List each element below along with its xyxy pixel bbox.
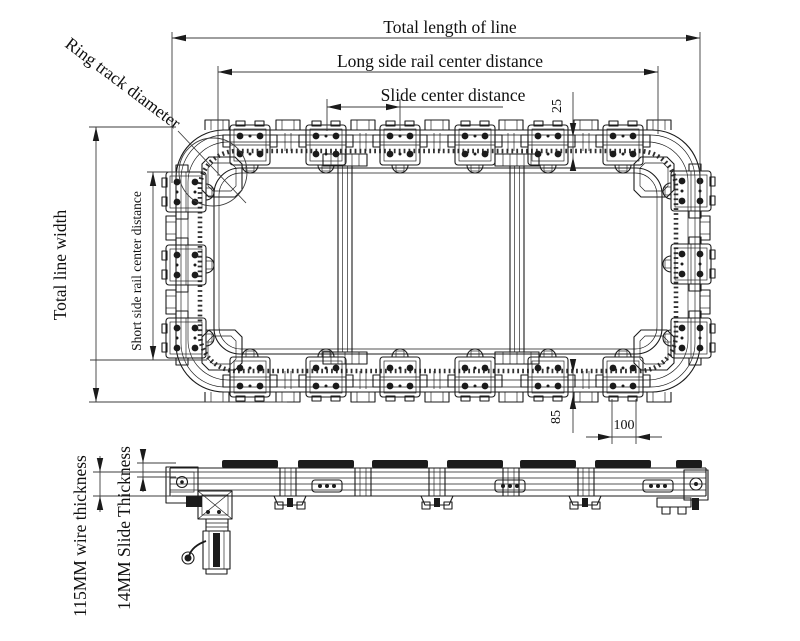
- slide-carriage: [663, 237, 715, 291]
- slide-carriage: [596, 349, 650, 401]
- slide-thickness-label: 14MM Slide Thickness: [114, 446, 134, 610]
- slide-carriage: [596, 121, 650, 173]
- dimension-25: 25: [550, 92, 576, 171]
- cross-member: [495, 154, 539, 364]
- dimension-100: 100: [586, 399, 662, 444]
- chain-track: [200, 151, 676, 371]
- cross-member: [323, 154, 367, 364]
- mounting-tabs: [166, 120, 710, 402]
- short-side-label: Short side rail center distance: [129, 191, 144, 351]
- corner-plate: [634, 330, 674, 370]
- technical-drawing-canvas: Ring track diameter Total length of line…: [0, 0, 800, 641]
- slide-center-label: Slide center distance: [381, 85, 526, 105]
- slide-carriages: [162, 121, 715, 401]
- slide-carriage: [223, 349, 277, 401]
- ring-rail-outlines: [176, 130, 700, 392]
- side-fittings: [274, 468, 673, 509]
- offset-85-label: 85: [549, 410, 564, 424]
- dimension-long-side: Long side rail center distance: [218, 51, 658, 176]
- wire-thickness-label: 115MM wire thickness: [70, 455, 90, 617]
- slide-carriage: [663, 164, 715, 218]
- slide-carriage: [223, 121, 277, 173]
- offset-25-label: 25: [550, 99, 565, 113]
- ring-conveyor-drawing: Ring track diameter Total length of line…: [0, 0, 800, 641]
- long-side-label: Long side rail center distance: [337, 51, 543, 71]
- side-rail: [170, 468, 706, 496]
- total-length-label: Total length of line: [383, 17, 517, 37]
- drive-unit: [166, 467, 232, 574]
- total-width-label: Total line width: [50, 209, 70, 320]
- slide-carriage: [448, 349, 502, 401]
- slide-carriage: [663, 311, 715, 365]
- slide-carriage: [521, 349, 575, 401]
- slide-carriage: [521, 121, 575, 173]
- corner-plate: [202, 330, 242, 370]
- slide-plates: [222, 460, 702, 468]
- pitch-100-label: 100: [614, 418, 635, 433]
- side-view: 115MM wire thickness 14MM Slide Thicknes…: [70, 446, 708, 617]
- slide-carriage: [373, 349, 427, 401]
- corner-plate: [634, 157, 674, 197]
- dimension-short-side: Short side rail center distance: [90, 172, 207, 360]
- plan-view: Ring track diameter Total length of line…: [50, 17, 715, 444]
- slide-carriage: [448, 121, 502, 173]
- dimension-slide-thickness: 14MM Slide Thickness: [114, 446, 176, 610]
- ring-track-diameter-label: Ring track diameter: [62, 33, 185, 133]
